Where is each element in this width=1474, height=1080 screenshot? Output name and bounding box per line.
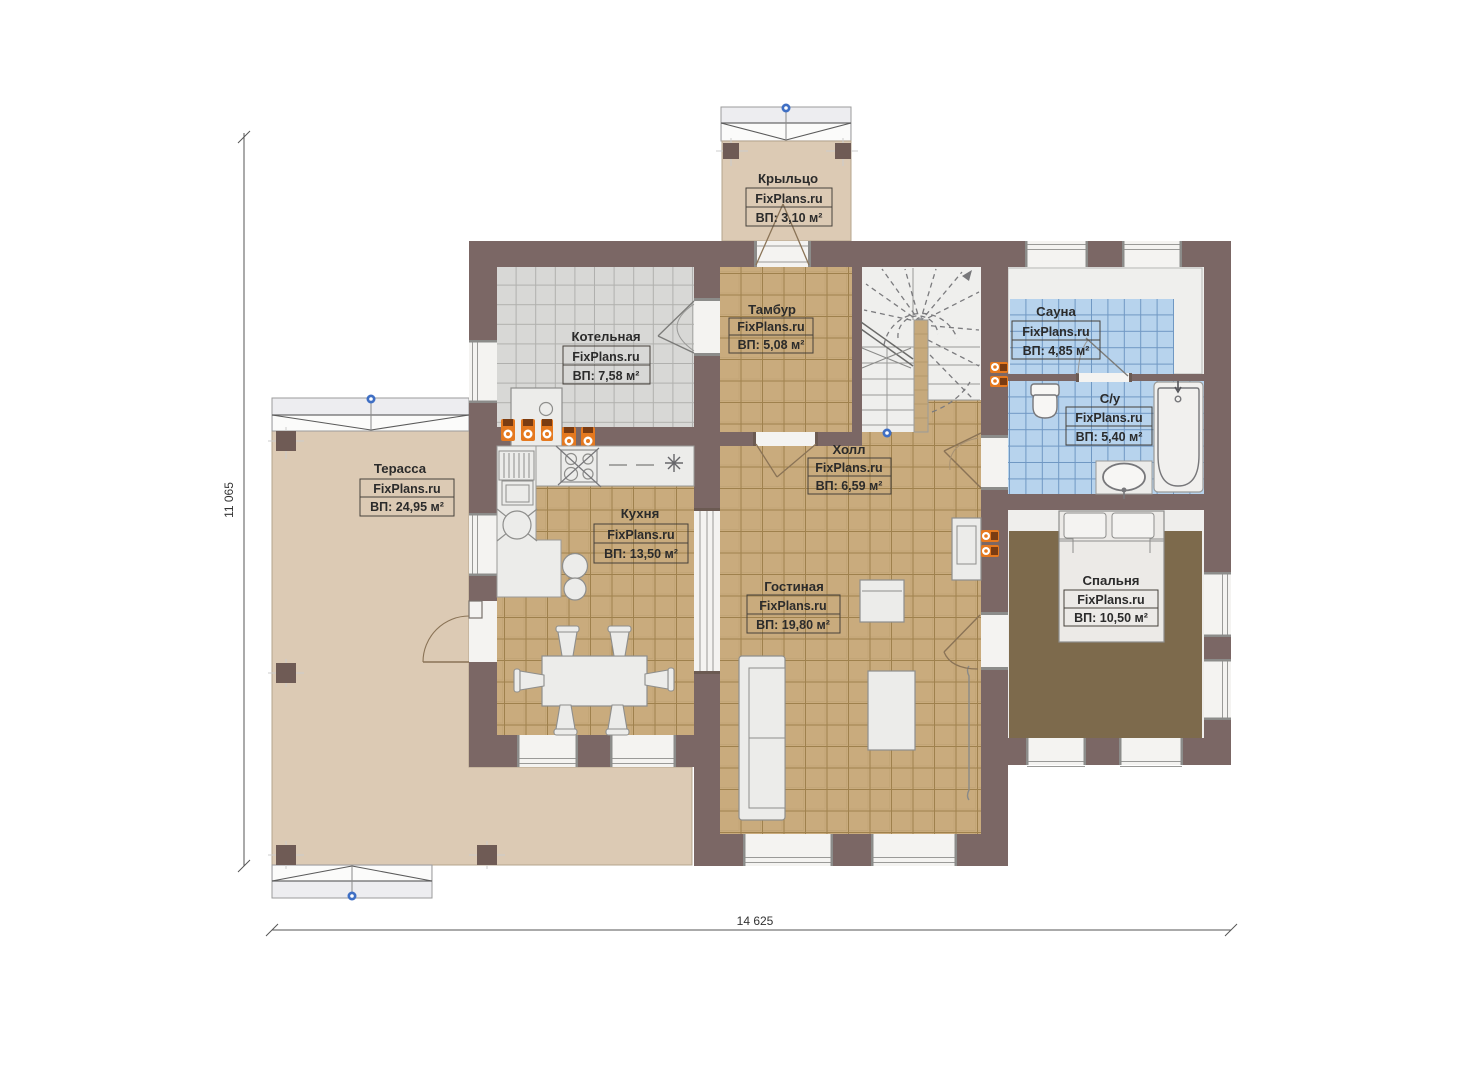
- svg-text:Тамбур: Тамбур: [748, 302, 796, 317]
- svg-text:Сауна: Сауна: [1036, 304, 1076, 319]
- svg-text:14 625: 14 625: [737, 914, 774, 928]
- svg-text:ВП: 5,40 м²: ВП: 5,40 м²: [1076, 430, 1143, 444]
- svg-text:Крыльцо: Крыльцо: [758, 171, 818, 186]
- svg-text:Котельная: Котельная: [571, 329, 640, 344]
- svg-text:Гостиная: Гостиная: [764, 579, 824, 594]
- svg-text:ВП: 3,10 м²: ВП: 3,10 м²: [756, 211, 823, 225]
- svg-text:ВП: 6,59 м²: ВП: 6,59 м²: [816, 479, 883, 493]
- svg-text:FixPlans.ru: FixPlans.ru: [815, 461, 882, 475]
- svg-text:С/у: С/у: [1100, 391, 1121, 406]
- svg-text:ВП: 7,58 м²: ВП: 7,58 м²: [573, 369, 640, 383]
- svg-text:FixPlans.ru: FixPlans.ru: [755, 192, 822, 206]
- svg-text:Кухня: Кухня: [621, 506, 660, 521]
- svg-text:FixPlans.ru: FixPlans.ru: [607, 528, 674, 542]
- svg-text:FixPlans.ru: FixPlans.ru: [737, 320, 804, 334]
- svg-text:ВП: 24,95 м²: ВП: 24,95 м²: [370, 500, 444, 514]
- svg-text:Терасса: Терасса: [374, 461, 427, 476]
- svg-text:Холл: Холл: [832, 442, 865, 457]
- svg-text:FixPlans.ru: FixPlans.ru: [1022, 325, 1089, 339]
- svg-text:FixPlans.ru: FixPlans.ru: [759, 599, 826, 613]
- svg-text:FixPlans.ru: FixPlans.ru: [1075, 411, 1142, 425]
- svg-text:FixPlans.ru: FixPlans.ru: [373, 482, 440, 496]
- svg-text:FixPlans.ru: FixPlans.ru: [572, 350, 639, 364]
- svg-text:Спальня: Спальня: [1083, 573, 1140, 588]
- svg-text:ВП: 13,50 м²: ВП: 13,50 м²: [604, 547, 678, 561]
- svg-text:ВП: 5,08 м²: ВП: 5,08 м²: [738, 338, 805, 352]
- svg-text:ВП: 19,80 м²: ВП: 19,80 м²: [756, 618, 830, 632]
- svg-text:ВП: 10,50 м²: ВП: 10,50 м²: [1074, 611, 1148, 625]
- svg-text:11 065: 11 065: [222, 482, 236, 518]
- svg-text:FixPlans.ru: FixPlans.ru: [1077, 593, 1144, 607]
- svg-text:ВП: 4,85 м²: ВП: 4,85 м²: [1023, 344, 1090, 358]
